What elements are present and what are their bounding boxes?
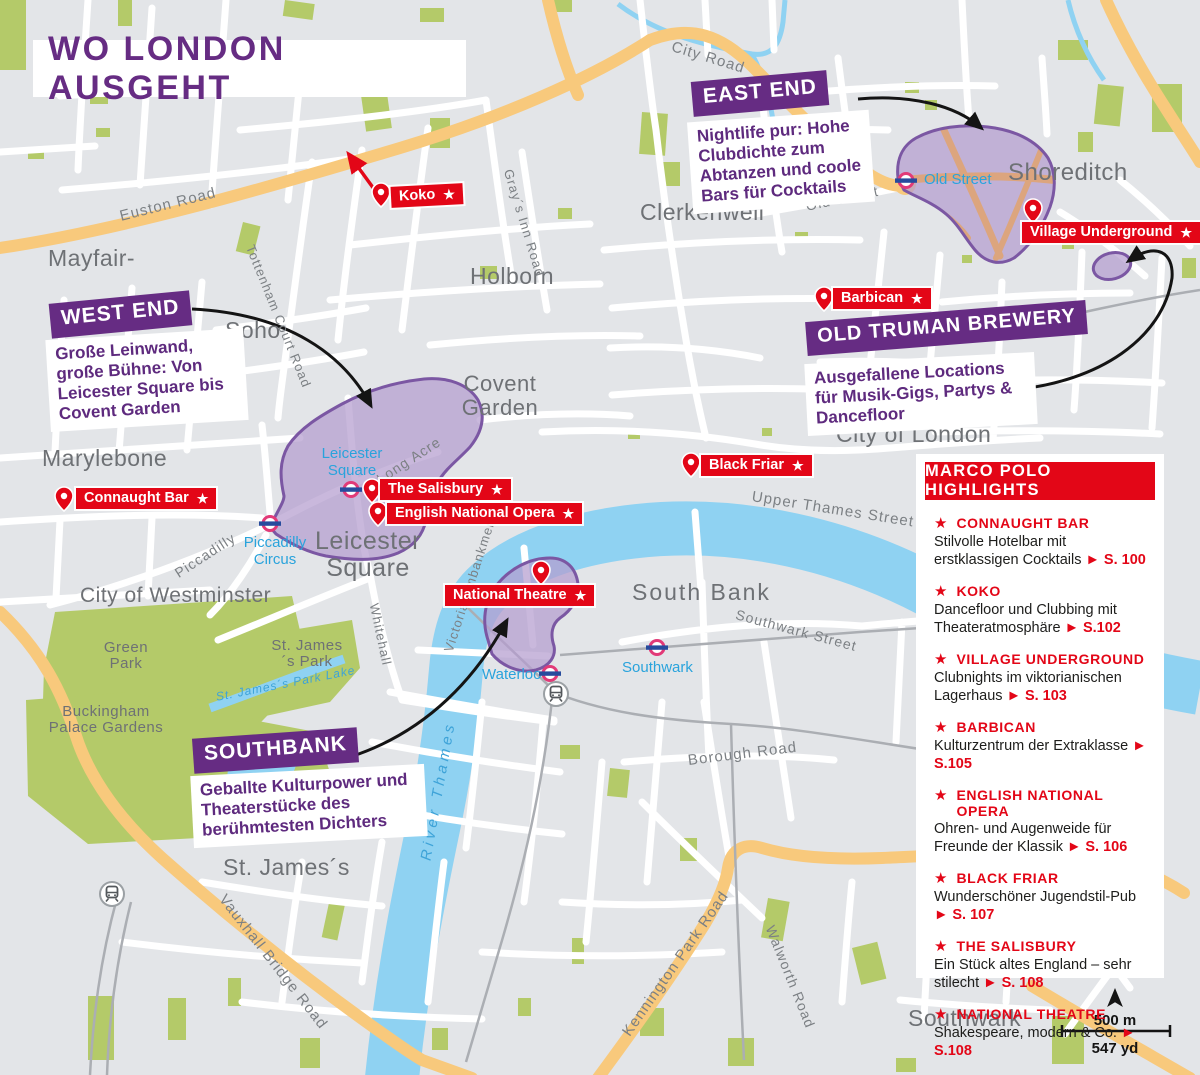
star-icon: ★ — [934, 514, 947, 532]
page-arrow-icon: ► — [983, 975, 997, 991]
poi-name: Koko — [399, 187, 436, 205]
pin-icon-koko — [371, 182, 391, 208]
star-icon: ★ — [1180, 226, 1192, 239]
star-icon: ★ — [934, 937, 947, 955]
pin-icon-english-national-opera — [368, 501, 388, 527]
highlight-description: Kulturzentrum der Extraklasse ► S.105 — [934, 738, 1148, 774]
poi-label-english-national-opera: English National Opera★ — [387, 503, 582, 524]
rail-station-icon-victoria — [98, 880, 126, 908]
district-label-green-park: Green Park — [93, 640, 159, 672]
highlight-name: CONNAUGHT BAR — [956, 515, 1089, 531]
highlight-item: ★ENGLISH NATIONAL OPERA Ohren- und Augen… — [934, 786, 1152, 857]
highlight-name: BLACK FRIAR — [956, 870, 1058, 886]
star-icon: ★ — [934, 718, 947, 736]
callout-description-west-end: Große Leinwand, große Bühne: Von Leicest… — [45, 328, 248, 432]
city-map: WO LONDON AUSGEHT Mayfair- Soho Holborn … — [0, 0, 1200, 1075]
star-icon: ★ — [934, 582, 947, 600]
district-label-mayfair: Mayfair- — [48, 246, 135, 271]
tube-roundel-old-street — [894, 170, 918, 191]
poi-label-connaught-bar: Connaught Bar★ — [76, 488, 216, 509]
district-label-st-james: St. James´s — [223, 855, 350, 880]
page-number: S.108 — [934, 1043, 972, 1059]
highlight-name: KOKO — [956, 583, 1000, 599]
pin-icon-connaught-bar — [54, 486, 74, 512]
page-reference: ► S. 107 — [934, 907, 994, 923]
callout-description-old-truman-brewery: Ausgefallene Locations für Musik-Gigs, P… — [804, 352, 1037, 436]
highlight-item: ★KOKO Dancefloor und Clubbing mit Theate… — [934, 582, 1152, 638]
page-reference: ► S.102 — [1065, 620, 1121, 636]
district-label-covent-garden: Covent Garden — [452, 372, 548, 420]
highlight-item: ★VILLAGE UNDERGROUND Clubnights im vikto… — [934, 650, 1152, 706]
star-icon: ★ — [491, 483, 503, 496]
highlight-text: Shakespeare, modern & Co. — [934, 1025, 1117, 1041]
page-number: S.102 — [1083, 620, 1121, 636]
highlights-list: ★CONNAUGHT BAR Stilvolle Hotelbar mit er… — [934, 514, 1152, 1061]
poi-label-black-friar: Black Friar★ — [701, 455, 812, 476]
page-number: S.105 — [934, 756, 972, 772]
poi-name: English National Opera — [395, 505, 555, 521]
highlight-name: THE SALISBURY — [956, 938, 1076, 954]
district-label-leicester-square: Leicester Square — [310, 528, 426, 582]
pin-icon-national-theatre — [531, 560, 551, 586]
highlight-description: Shakespeare, modern & Co. ► S.108 — [934, 1025, 1148, 1061]
page-arrow-icon: ► — [934, 907, 948, 923]
star-icon: ★ — [443, 187, 455, 201]
page-number: S. 103 — [1025, 688, 1067, 704]
poi-name: Barbican — [841, 290, 903, 306]
rail-station-icon-waterloo — [542, 680, 570, 708]
district-label-buckingham-palace-gardens: Buckingham Palace Gardens — [46, 704, 166, 736]
tube-label-old-street: Old Street — [924, 172, 992, 189]
page-arrow-icon: ► — [1086, 552, 1100, 568]
star-icon: ★ — [934, 786, 947, 804]
callout-description-southbank: Geballte Kulturpower und Theaterstücke d… — [190, 764, 427, 848]
highlight-description: Dancefloor und Clubbing mit Theateratmos… — [934, 602, 1148, 638]
pin-icon-black-friar — [681, 452, 701, 478]
district-label-city-of-westminster: City of Westminster — [80, 585, 271, 608]
highlight-description: Wunderschöner Jugendstil-Pub ► S. 107 — [934, 889, 1148, 925]
highlights-panel-title: MARCO POLO HIGHLIGHTS — [925, 462, 1155, 500]
highlight-item: ★BARBICAN Kulturzentrum der Extraklasse … — [934, 718, 1152, 774]
highlight-item: ★NATIONAL THEATRE Shakespeare, modern & … — [934, 1005, 1152, 1061]
page-arrow-icon: ► — [1065, 620, 1079, 636]
page-number: S. 107 — [952, 907, 994, 923]
highlight-item: ★THE SALISBURY Ein Stück altes England –… — [934, 937, 1152, 993]
district-label-marylebone: Marylebone — [42, 446, 167, 471]
highlight-item: ★CONNAUGHT BAR Stilvolle Hotelbar mit er… — [934, 514, 1152, 570]
page-arrow-icon: ► — [1007, 688, 1021, 704]
pin-icon-barbican — [814, 286, 834, 312]
highlight-text: Kulturzentrum der Extraklasse — [934, 738, 1128, 754]
page-number: S. 100 — [1104, 552, 1146, 568]
poi-label-village-underground: Village Underground★ — [1022, 222, 1200, 243]
star-icon: ★ — [934, 1005, 947, 1023]
district-label-shoreditch: Shoreditch — [1008, 160, 1128, 186]
district-label-south-bank: South Bank — [632, 580, 771, 605]
star-icon: ★ — [934, 650, 947, 668]
poi-label-the-salisbury: The Salisbury★ — [380, 479, 511, 500]
poi-name: The Salisbury — [388, 481, 483, 497]
page-number: S. 108 — [1002, 975, 1044, 991]
star-icon: ★ — [575, 589, 587, 602]
poi-label-koko: Koko★ — [390, 183, 463, 208]
tube-roundel-southwark — [645, 637, 669, 658]
star-icon: ★ — [911, 292, 923, 305]
pin-icon-village-underground — [1023, 198, 1043, 224]
page-reference: ► S. 100 — [1086, 552, 1146, 568]
star-icon: ★ — [563, 507, 575, 520]
highlight-description: Stilvolle Hotelbar mit erstklassigen Coc… — [934, 534, 1148, 570]
page-reference: ► S. 108 — [983, 975, 1043, 991]
tube-roundel-piccadilly-circus — [258, 513, 282, 534]
callout-description-east-end: Nightlife pur: Hohe Clubdichte zum Abtan… — [687, 110, 875, 215]
star-icon: ★ — [197, 492, 209, 505]
poi-label-barbican: Barbican★ — [833, 288, 931, 309]
poi-name: Connaught Bar — [84, 490, 189, 506]
page-reference: ► S. 103 — [1007, 688, 1067, 704]
tube-label-leicester-square: Leicester Square — [314, 446, 390, 479]
tube-roundel-leicester-square — [339, 479, 363, 500]
highlight-description: Clubnights im viktorianischen Lagerhaus … — [934, 670, 1148, 706]
poi-label-national-theatre: National Theatre★ — [445, 585, 594, 606]
highlight-text: Stilvolle Hotelbar mit erstklassigen Coc… — [934, 534, 1081, 568]
poi-name: Black Friar — [709, 457, 784, 473]
highlight-text: Wunderschöner Jugendstil-Pub — [934, 889, 1136, 905]
page-title: WO LONDON AUSGEHT — [33, 40, 466, 97]
highlight-name: VILLAGE UNDERGROUND — [956, 651, 1144, 667]
poi-name: Village Underground — [1030, 224, 1172, 240]
highlight-name: NATIONAL THEATRE — [956, 1006, 1106, 1022]
star-icon: ★ — [934, 869, 947, 887]
highlight-name: ENGLISH NATIONAL OPERA — [956, 787, 1152, 819]
highlight-description: Ein Stück altes England – sehr stilecht … — [934, 957, 1148, 993]
page-number: S. 106 — [1085, 839, 1127, 855]
page-arrow-icon: ► — [1121, 1025, 1135, 1041]
tube-label-southwark: Southwark — [622, 660, 693, 677]
highlights-panel: MARCO POLO HIGHLIGHTS ★CONNAUGHT BAR Sti… — [916, 454, 1164, 978]
tube-label-waterloo: Waterloo — [482, 667, 541, 684]
highlight-description: Ohren- und Augenweide für Freunde der Kl… — [934, 821, 1148, 857]
poi-name: National Theatre — [453, 587, 567, 603]
tube-label-piccadilly-circus: Piccadilly Circus — [228, 535, 322, 568]
page-reference: ► S. 106 — [1067, 839, 1127, 855]
page-arrow-icon: ► — [1067, 839, 1081, 855]
highlight-item: ★BLACK FRIAR Wunderschöner Jugendstil-Pu… — [934, 869, 1152, 925]
star-icon: ★ — [792, 459, 804, 472]
highlight-name: BARBICAN — [956, 719, 1035, 735]
page-arrow-icon: ► — [1132, 738, 1146, 754]
